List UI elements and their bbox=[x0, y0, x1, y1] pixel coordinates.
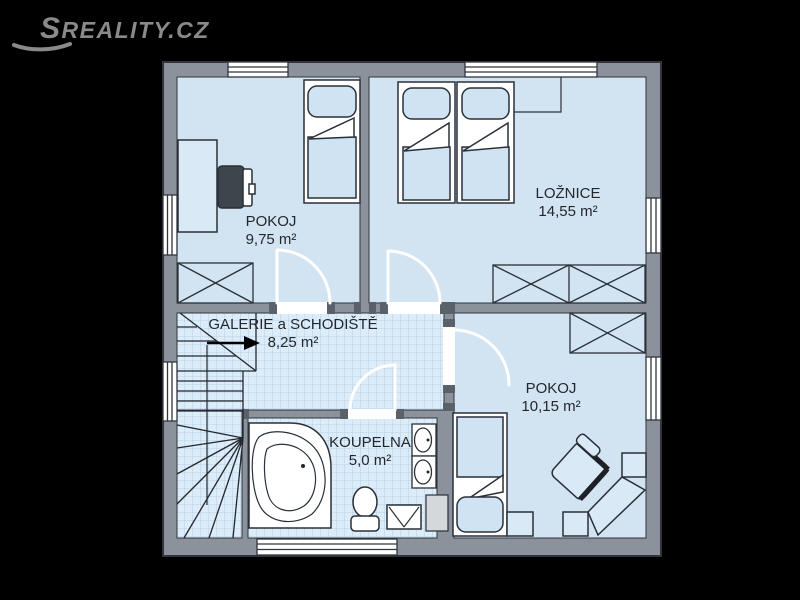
sink-icon bbox=[412, 456, 436, 488]
room-name: LOŽNICE bbox=[535, 185, 600, 203]
room-name: GALERIE a SCHODIŠTĚ bbox=[208, 316, 377, 334]
office-chair-icon bbox=[218, 166, 255, 208]
installation-shaft bbox=[426, 495, 448, 531]
room-name: KOUPELNA bbox=[329, 434, 411, 452]
room-label-pokoj2: POKOJ 10,15 m² bbox=[521, 380, 580, 416]
corner-bathtub-icon bbox=[249, 423, 331, 528]
window-icon bbox=[257, 539, 397, 555]
desk-icon bbox=[178, 140, 217, 232]
window-icon bbox=[163, 195, 177, 255]
single-bed-icon bbox=[453, 413, 507, 536]
room-area: 9,75 m² bbox=[246, 231, 297, 249]
room-name: POKOJ bbox=[521, 380, 580, 398]
floor-stairwell-tiled bbox=[177, 410, 242, 538]
room-name: POKOJ bbox=[246, 213, 297, 231]
room-label-loznice: LOŽNICE 14,55 m² bbox=[535, 185, 600, 221]
room-area: 5,0 m² bbox=[329, 452, 411, 470]
floor-plan-image: SREALITY.CZ bbox=[0, 0, 800, 600]
logo-underline-swash bbox=[0, 0, 240, 60]
window-icon bbox=[228, 62, 288, 77]
room-area: 14,55 m² bbox=[535, 203, 600, 221]
toilet-icon bbox=[351, 487, 379, 531]
room-area: 8,25 m² bbox=[208, 334, 377, 352]
room-label-pokoj1: POKOJ 9,75 m² bbox=[246, 213, 297, 249]
window-icon bbox=[646, 357, 661, 420]
window-icon bbox=[163, 362, 177, 421]
single-bed-icon bbox=[304, 80, 360, 203]
room-label-galerie: GALERIE a SCHODIŠTĚ 8,25 m² bbox=[208, 316, 377, 352]
room-area: 10,15 m² bbox=[521, 398, 580, 416]
window-icon bbox=[465, 62, 597, 77]
washing-machine-icon bbox=[387, 505, 421, 529]
floor-plan-drawing bbox=[0, 0, 800, 600]
window-icon bbox=[646, 198, 661, 253]
room-label-koupelna: KOUPELNA 5,0 m² bbox=[329, 434, 411, 470]
sink-icon bbox=[412, 424, 436, 456]
